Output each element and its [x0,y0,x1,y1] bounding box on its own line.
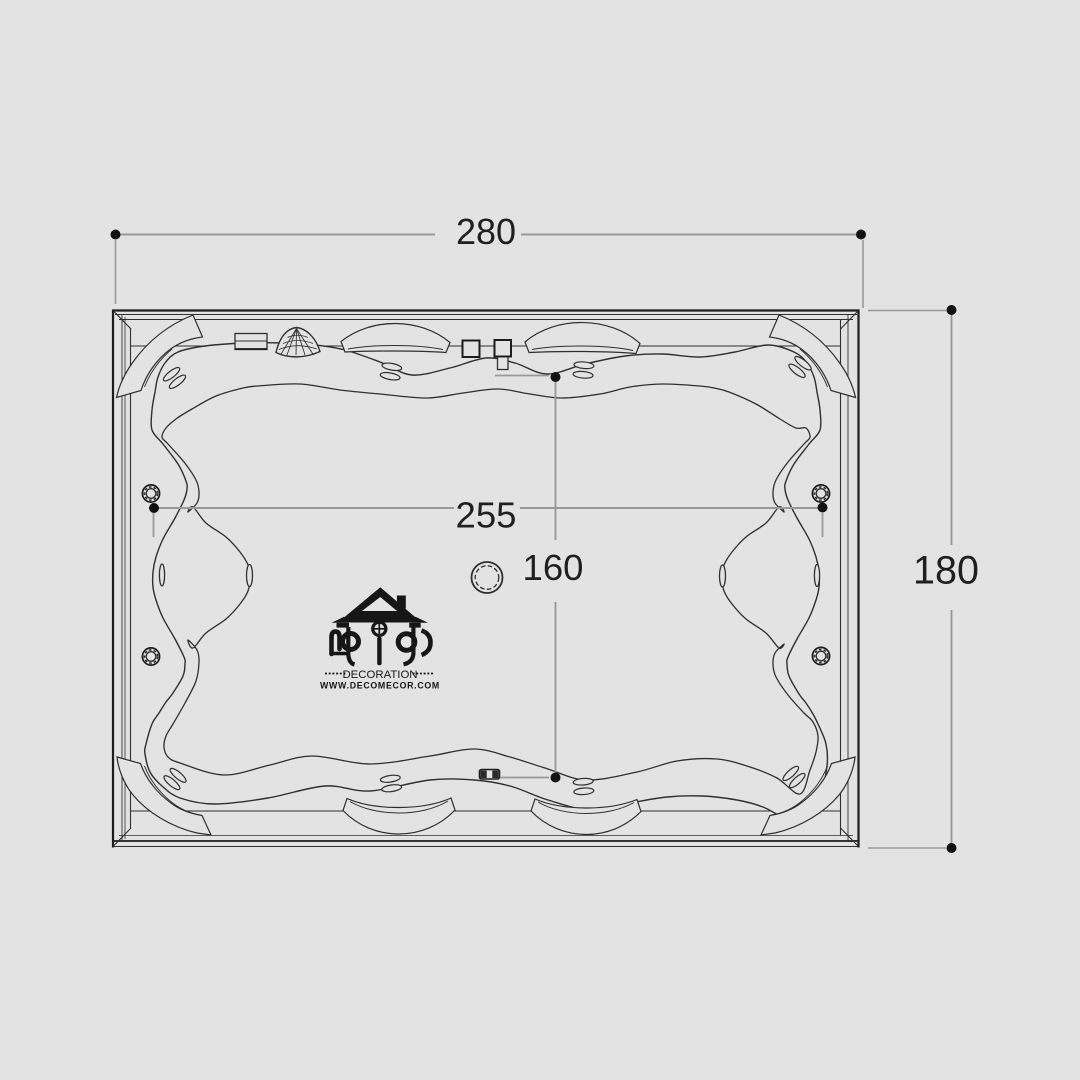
svg-text:DECORATION: DECORATION [342,669,417,681]
svg-text:WWW.DECOMECOR.COM: WWW.DECOMECOR.COM [320,681,440,691]
svg-text:280: 280 [456,211,516,252]
svg-text:160: 160 [523,547,584,588]
svg-text:255: 255 [456,495,517,536]
svg-text:180: 180 [913,549,979,593]
